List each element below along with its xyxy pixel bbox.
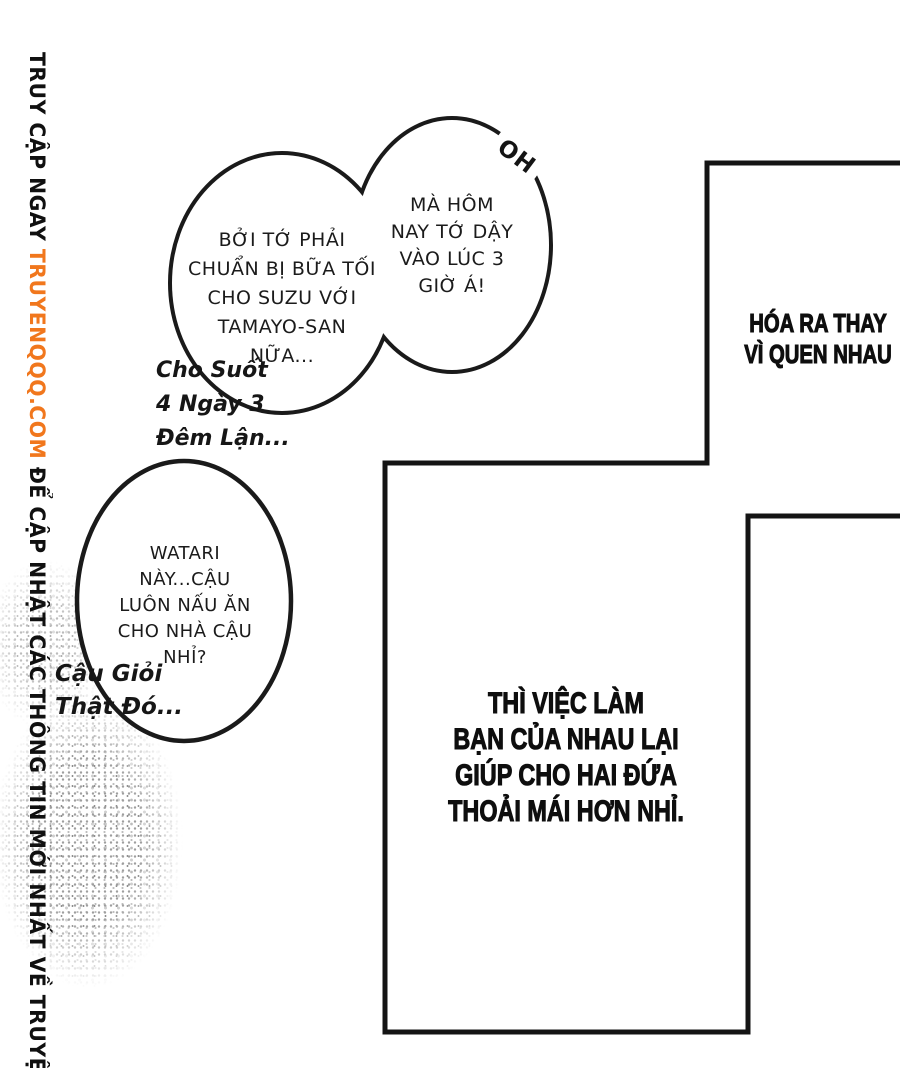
text-line: MÀ HÔM [344,192,560,219]
narration-caption-bottom: THÌ VIỆC LÀM BẠN CỦA NHAU LẠI GIÚP CHO H… [398,686,734,830]
text-line: HÓA RA THAY [731,308,900,339]
watermark-site-url: TRUYENQQQ.COM [25,249,49,459]
text-line: NAY TỚ DẬY [344,219,560,246]
watermark-vertical-text: TRUY CẬP NGAY TRUYENQQQ.COM ĐỂ CẬP NHẬT … [7,52,49,1012]
panel-artwork [0,0,900,1068]
text-line: WATARI [79,541,291,567]
text-line: NÀY...CẬU [79,567,291,593]
handwritten-note-duration: Cho Suốt 4 Ngày 3 Đêm Lận... [156,354,296,456]
text-line: VÌ QUEN NHAU [731,339,900,370]
text-line: CHO NHÀ CẬU [79,619,291,645]
handwritten-note-praise: Cậu Giỏi Thật Đó... [55,658,225,724]
text-line: THÌ VIỆC LÀM [435,686,697,722]
text-line: Thật Đó... [55,691,225,724]
text-line: GIỜ Á! [344,273,560,300]
text-line: Đêm Lận... [156,422,296,456]
text-line: GIÚP CHO HAI ĐỨA [435,758,697,794]
narration-caption-top-right: HÓA RA THAY VÌ QUEN NHAU [706,308,900,370]
speech-bubble-text-watari: WATARI NÀY...CẬU LUÔN NẤU ĂN CHO NHÀ CẬU… [79,541,291,671]
text-line: VÀO LÚC 3 [344,246,560,273]
text-line: 4 Ngày 3 [156,388,296,422]
speech-bubble-text-wakeup: MÀ HÔM NAY TỚ DẬY VÀO LÚC 3 GIỜ Á! [344,192,560,300]
text-line: TAMAYO-SAN [172,313,392,342]
text-line: Cậu Giỏi [55,658,225,691]
text-line: Cho Suốt [156,354,296,388]
text-line: LUÔN NẤU ĂN [79,593,291,619]
text-line: BẠN CỦA NHAU LẠI [435,722,697,758]
manga-page: TRUY CẬP NGAY TRUYENQQQ.COM ĐỂ CẬP NHẬT … [0,0,900,1068]
text-line: THOẢI MÁI HƠN NHỈ. [435,794,697,830]
watermark-suffix: ĐỂ CẬP NHẬT CÁC THÔNG TIN MỚI NHẤT VỀ TR… [25,459,49,1068]
watermark-prefix: TRUY CẬP NGAY [25,52,49,249]
